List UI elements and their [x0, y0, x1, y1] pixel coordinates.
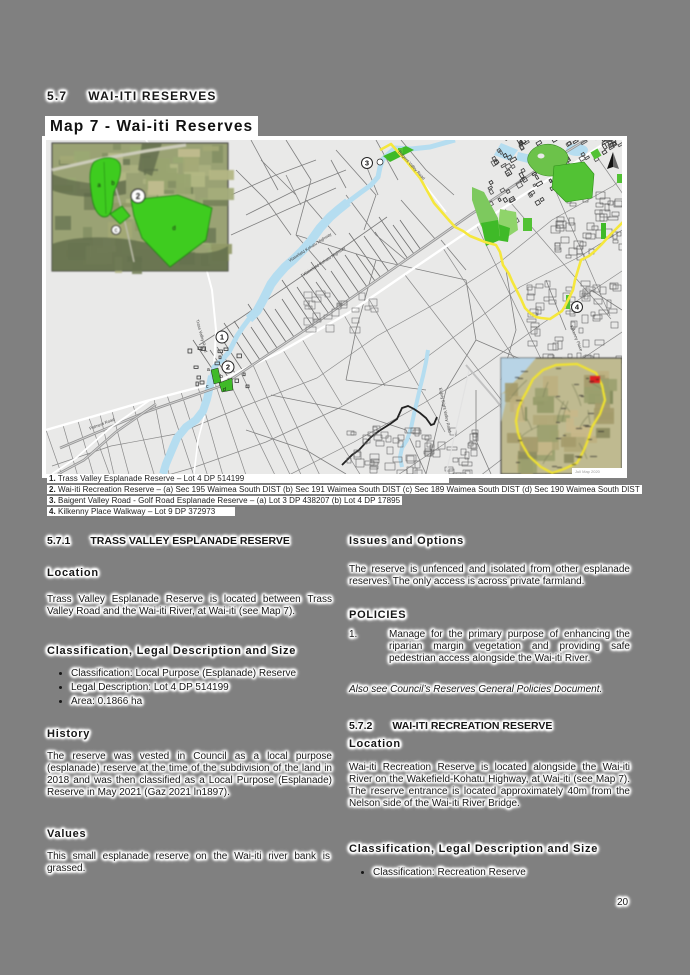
svg-text:3: 3 — [365, 159, 369, 168]
svg-text:d: d — [172, 226, 175, 232]
svg-text:d: d — [223, 387, 226, 393]
svg-text:b: b — [220, 374, 223, 380]
svg-text:Juli Map 2020: Juli Map 2020 — [575, 469, 601, 474]
svg-text:2: 2 — [136, 192, 141, 201]
svg-text:a: a — [207, 367, 210, 373]
svg-text:2: 2 — [226, 363, 230, 372]
svg-text:c: c — [115, 228, 118, 234]
svg-text:1: 1 — [220, 333, 224, 342]
